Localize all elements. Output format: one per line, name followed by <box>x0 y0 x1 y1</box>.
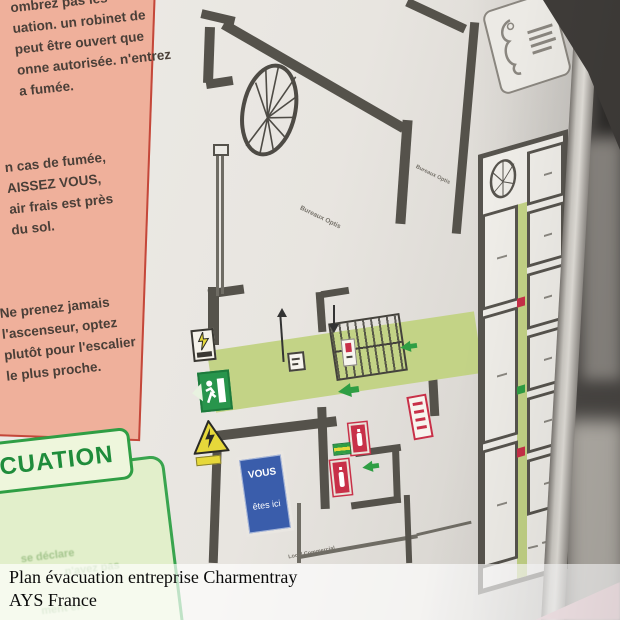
room-tag-sign <box>287 351 306 372</box>
fire-extinguisher-icon <box>330 459 352 496</box>
extinguisher-symbol-icon <box>492 14 532 82</box>
wall-segment <box>203 27 215 83</box>
direction-arrow-icon <box>337 383 352 399</box>
instruction-paragraph: n cas de fumée,AISSEZ VOUS, air frais es… <box>4 147 116 241</box>
label-mark <box>532 46 552 55</box>
flow-arrow-head <box>329 324 339 333</box>
flow-arrow-icon <box>333 305 335 325</box>
fire-extinguisher-icon <box>348 422 369 455</box>
direction-arrow-icon <box>400 341 412 354</box>
instruction-paragraph: Ne prenez jamaisl'ascenseur, optez plutô… <box>0 290 139 387</box>
warning-triangle-icon <box>190 418 229 456</box>
flow-arrow-head <box>277 308 287 317</box>
room-outline <box>482 204 518 310</box>
you-are-here-line2: êtes ici <box>246 497 287 512</box>
stairs-icon <box>328 313 408 381</box>
caption-overlay: Plan évacuation entreprise Charmentray A… <box>0 564 620 620</box>
faint-text: se déclare <box>20 547 75 565</box>
wall-segment <box>221 152 224 294</box>
evacuation-tab-label: ACUATION <box>0 441 115 484</box>
room-outline <box>482 440 518 568</box>
room-outline <box>527 141 564 206</box>
room-outline <box>527 201 564 268</box>
spiral-staircase-icon <box>488 154 518 203</box>
caption-subtitle: AYS France <box>9 590 97 611</box>
evacuation-plan-photo: ✱ ombrez pas lesuation. un robinet de pe… <box>0 0 620 620</box>
fire-equipment-sign <box>341 338 358 366</box>
alarm-point-icon <box>332 442 351 456</box>
instruction-paragraph: ombrez pas lesuation. un robinet de peut… <box>9 0 174 102</box>
wall-segment <box>216 150 219 296</box>
room-outline <box>482 306 518 444</box>
electrical-cutoff-icon <box>190 328 216 362</box>
door-symbol <box>213 144 229 156</box>
you-are-here-line1: VOUS <box>242 465 283 481</box>
direction-arrow-icon <box>362 461 374 474</box>
exit-running-man-icon <box>197 369 233 412</box>
instructions-panel: ✱ ombrez pas lesuation. un robinet de pe… <box>0 0 156 441</box>
caption-title: Plan évacuation entreprise Charmentray <box>9 567 297 588</box>
